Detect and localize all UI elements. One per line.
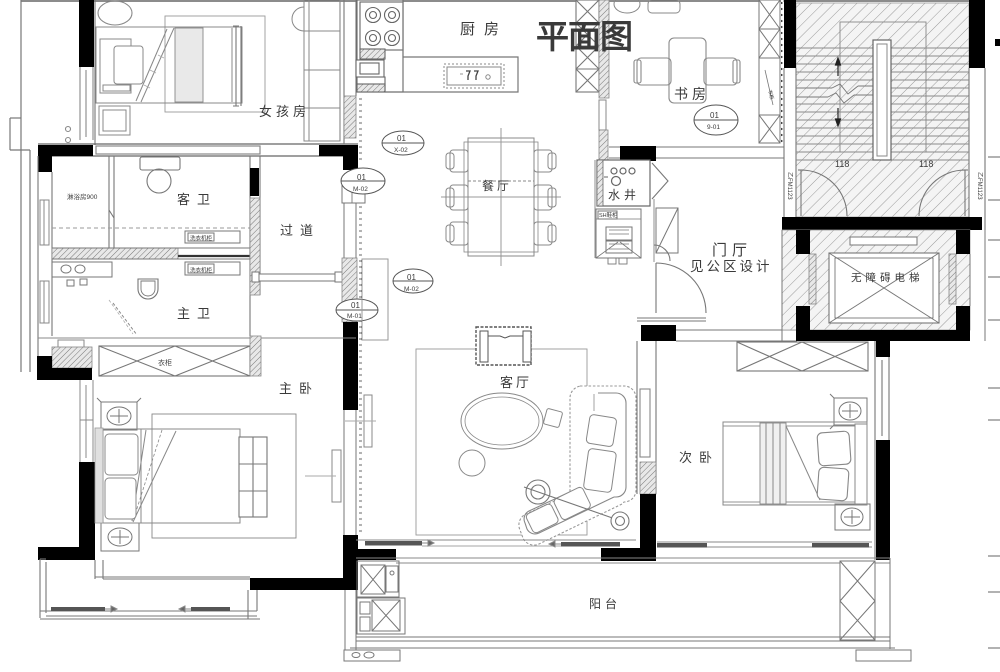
svg-text:X-02: X-02 (394, 147, 408, 154)
svg-text:餐厅: 餐厅 (482, 178, 512, 193)
svg-text:乙FM1123: 乙FM1123 (786, 172, 793, 200)
svg-text:过道: 过道 (280, 223, 320, 238)
svg-text:见公区设计: 见公区设计 (690, 259, 773, 274)
svg-text:01: 01 (357, 173, 366, 182)
svg-text:主卧: 主卧 (279, 381, 319, 396)
svg-text:门厅: 门厅 (712, 242, 752, 259)
svg-text:118: 118 (835, 159, 849, 169)
svg-text:乙FM1123: 乙FM1123 (976, 172, 983, 200)
svg-text:次卧: 次卧 (679, 450, 719, 465)
svg-text:洗衣机柜: 洗衣机柜 (190, 234, 213, 242)
svg-text:01: 01 (397, 134, 406, 143)
svg-text:SH鞋柜: SH鞋柜 (599, 211, 618, 219)
svg-text:客厅: 客厅 (500, 375, 532, 390)
svg-text:M-02: M-02 (404, 286, 419, 293)
svg-text:01: 01 (407, 273, 416, 282)
svg-text:无障碍电梯: 无障碍电梯 (851, 271, 924, 284)
svg-text:主卫: 主卫 (177, 306, 217, 321)
svg-text:水井: 水井 (608, 188, 640, 202)
svg-text:01: 01 (710, 111, 719, 120)
svg-text:M-01: M-01 (347, 313, 362, 320)
svg-text:阳台: 阳台 (589, 596, 621, 611)
svg-text:洗衣机柜: 洗衣机柜 (190, 266, 213, 274)
svg-text:厨房: 厨房 (460, 21, 508, 38)
svg-text:118: 118 (919, 159, 933, 169)
svg-text:平面图: 平面图 (536, 18, 632, 55)
svg-text:01: 01 (351, 301, 360, 310)
svg-text:客卫: 客卫 (177, 192, 217, 207)
svg-text:衣柜: 衣柜 (158, 358, 172, 367)
svg-text:书房: 书房 (674, 86, 710, 102)
svg-text:M-02: M-02 (353, 186, 368, 193)
svg-text:女孩房: 女孩房 (259, 104, 310, 119)
svg-text:淋浴房900: 淋浴房900 (67, 192, 98, 201)
svg-text:9-01: 9-01 (707, 124, 720, 131)
